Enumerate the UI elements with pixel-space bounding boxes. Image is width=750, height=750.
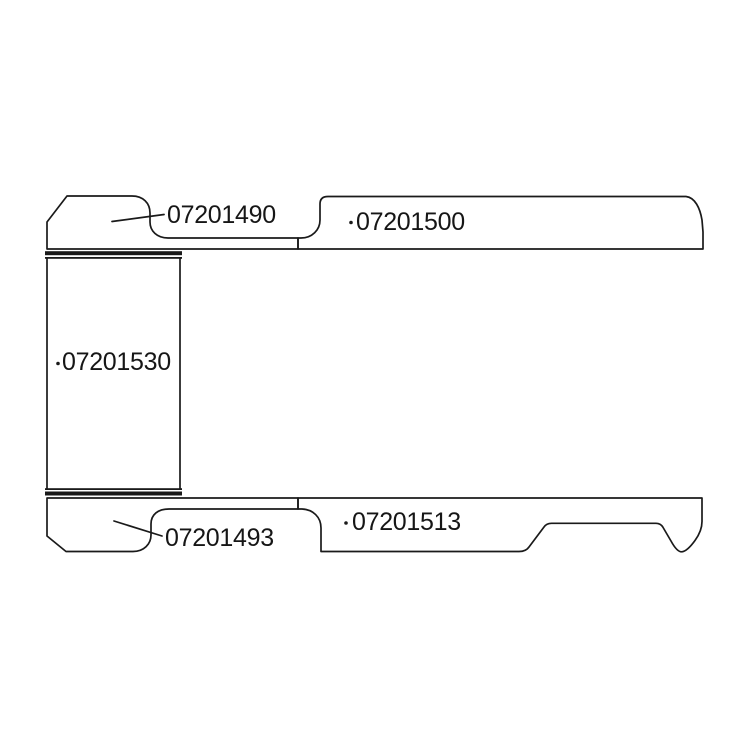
panel-bottom-edge-bar-2 (45, 492, 182, 496)
leader-dot-07201500 (349, 221, 353, 225)
part-label-07201493: 07201493 (165, 526, 274, 551)
parts-diagram: 07201490 07201500 07201530 07201493 0720… (0, 0, 750, 750)
panel-bottom-edge-bar-1 (45, 488, 182, 490)
part-label-07201500: 07201500 (356, 210, 465, 235)
part-label-07201513: 07201513 (352, 510, 461, 535)
leader-dot-07201530 (56, 362, 60, 366)
panel-top-edge-bar-2 (45, 257, 182, 259)
part-label-07201490: 07201490 (167, 203, 276, 228)
leader-dot-07201513 (344, 521, 348, 525)
panel-top-edge-bar-1 (45, 251, 182, 255)
part-label-07201530: 07201530 (62, 350, 171, 375)
